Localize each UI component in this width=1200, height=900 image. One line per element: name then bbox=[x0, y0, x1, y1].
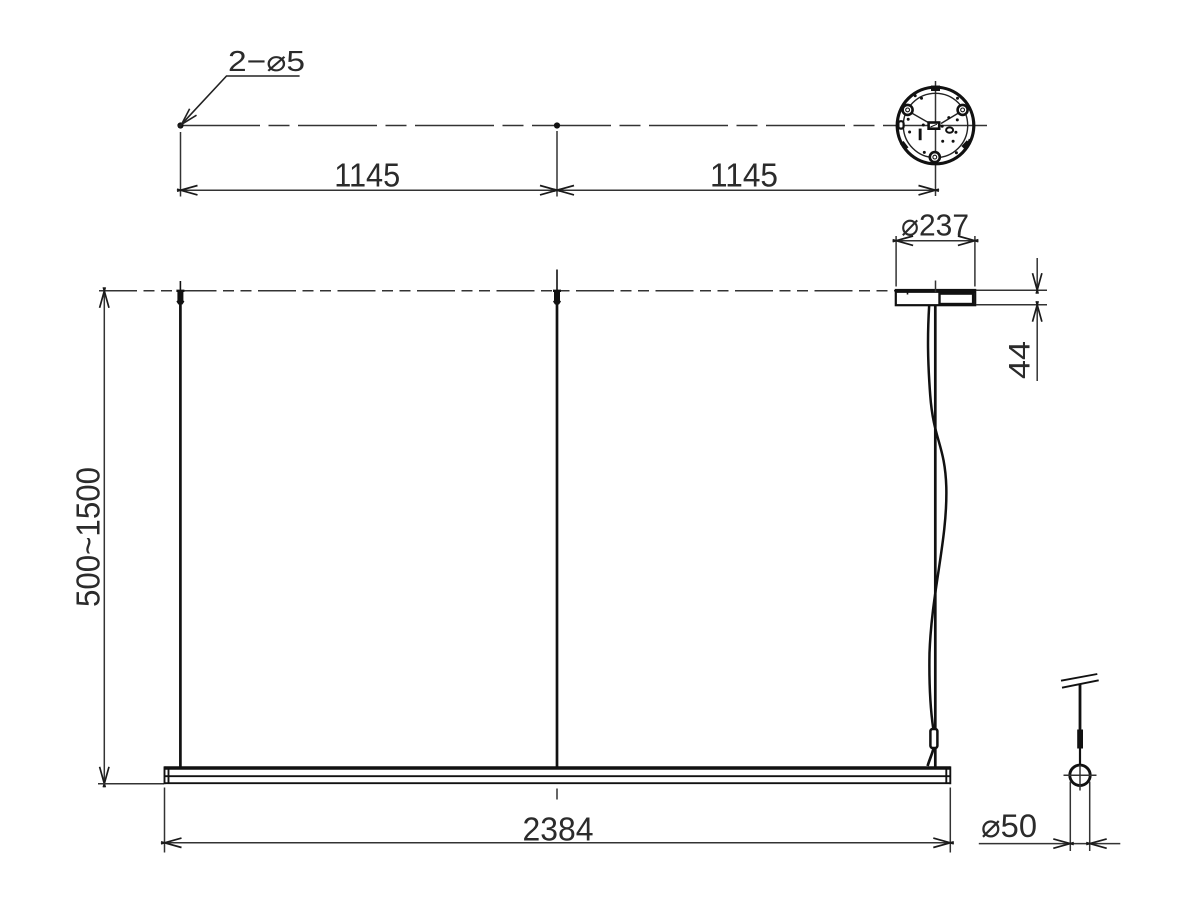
svg-text:500~1500: 500~1500 bbox=[70, 467, 107, 607]
svg-text:2384: 2384 bbox=[523, 811, 594, 848]
svg-text:⌀50: ⌀50 bbox=[981, 808, 1037, 844]
svg-text:2−⌀5: 2−⌀5 bbox=[228, 46, 305, 78]
svg-text:44: 44 bbox=[1004, 341, 1037, 379]
svg-text:1145: 1145 bbox=[334, 156, 400, 193]
svg-text:1145: 1145 bbox=[710, 157, 778, 194]
svg-text:⌀237: ⌀237 bbox=[901, 208, 969, 243]
